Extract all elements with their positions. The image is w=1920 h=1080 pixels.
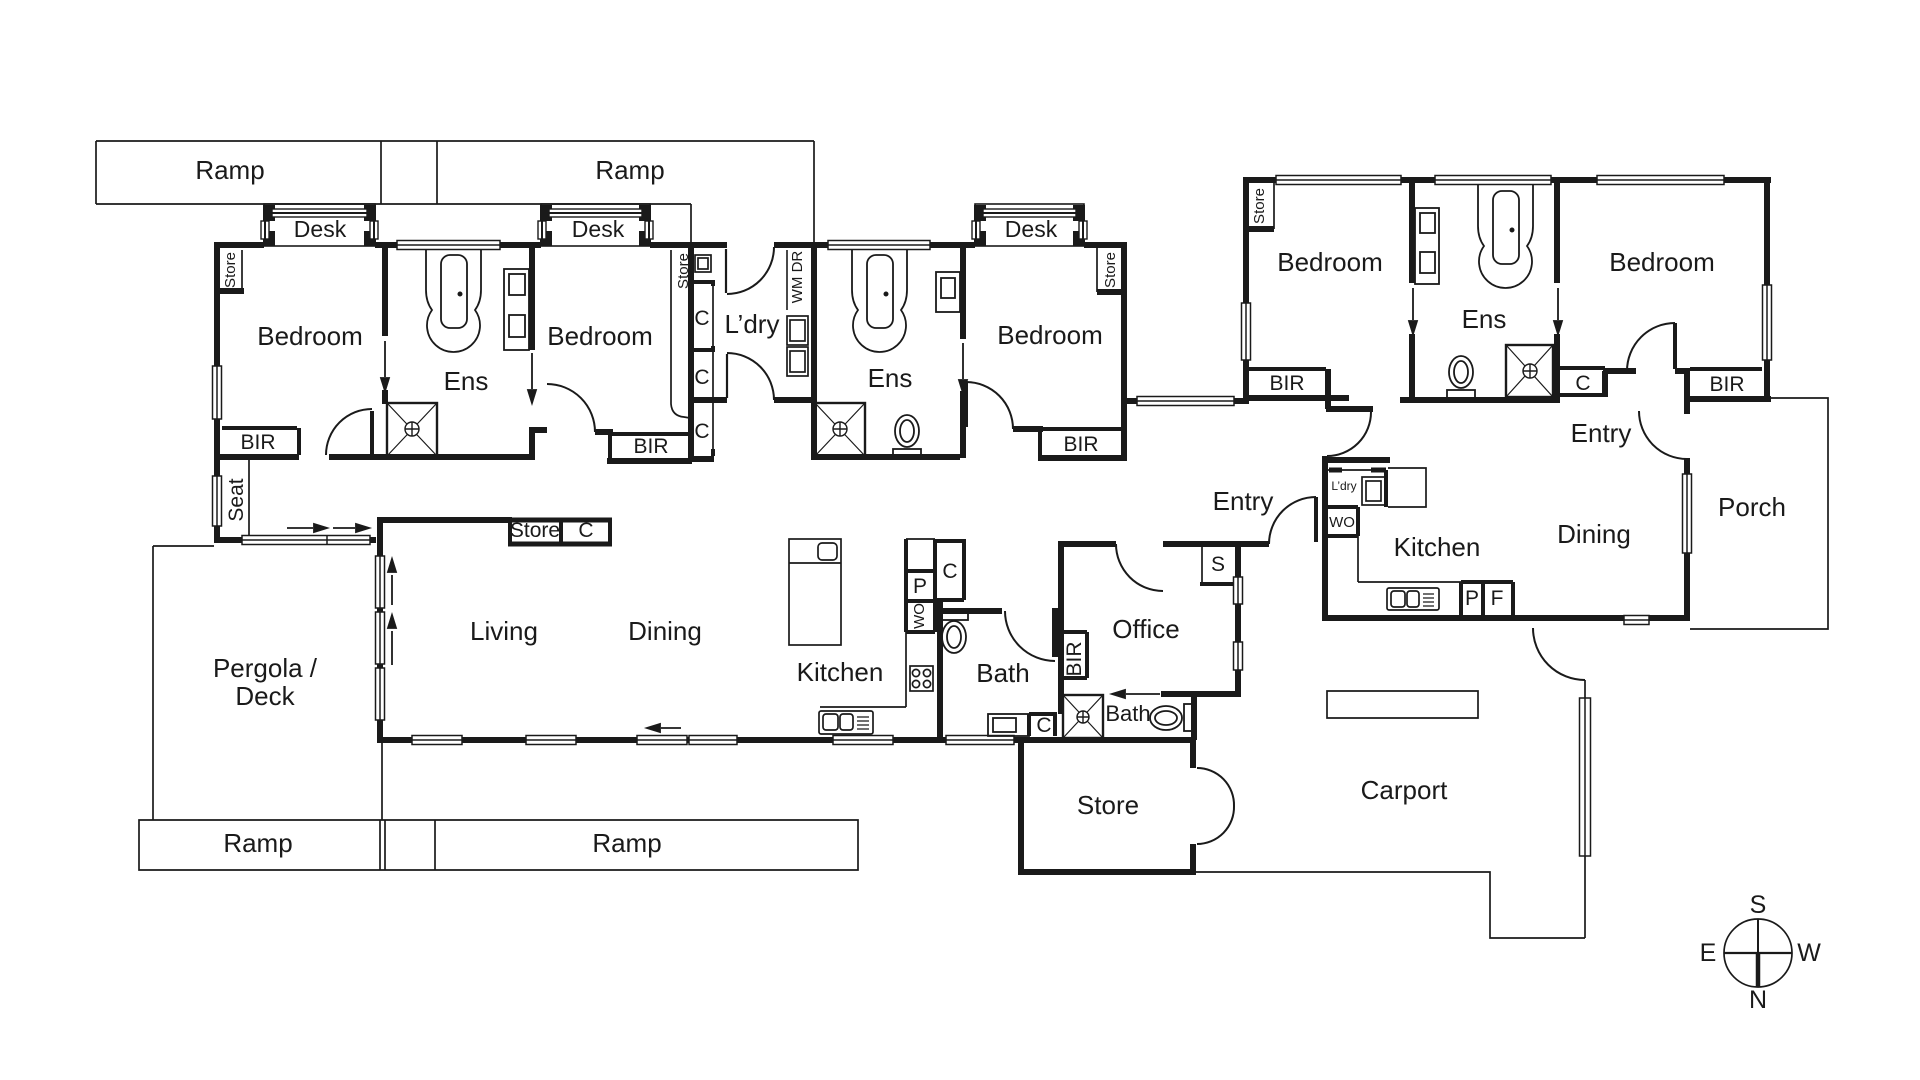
svg-text:Carport: Carport xyxy=(1361,775,1448,805)
svg-text:C: C xyxy=(694,366,709,389)
svg-text:WO: WO xyxy=(911,603,928,629)
svg-text:C: C xyxy=(578,519,593,542)
svg-text:E: E xyxy=(1700,939,1717,967)
svg-text:Kitchen: Kitchen xyxy=(797,657,884,687)
svg-text:S: S xyxy=(1211,553,1225,576)
svg-text:BIR: BIR xyxy=(1269,372,1304,395)
svg-text:Porch: Porch xyxy=(1718,492,1786,522)
svg-text:C: C xyxy=(694,420,709,443)
svg-text:Ens: Ens xyxy=(444,366,489,396)
svg-text:N: N xyxy=(1749,986,1767,1014)
svg-text:Dining: Dining xyxy=(1557,519,1631,549)
svg-text:Bedroom: Bedroom xyxy=(1609,247,1715,277)
svg-text:Pergola /: Pergola / xyxy=(213,653,318,683)
svg-text:Ramp: Ramp xyxy=(223,828,292,858)
svg-text:Kitchen: Kitchen xyxy=(1394,532,1481,562)
svg-text:Store: Store xyxy=(510,519,560,542)
svg-text:Bedroom: Bedroom xyxy=(997,320,1103,350)
svg-text:Dining: Dining xyxy=(628,616,702,646)
svg-text:Living: Living xyxy=(470,616,538,646)
svg-text:L’dry: L’dry xyxy=(1331,479,1356,493)
svg-text:WO: WO xyxy=(1329,514,1355,531)
svg-text:Office: Office xyxy=(1112,614,1179,644)
svg-text:C: C xyxy=(694,307,709,330)
svg-text:L’dry: L’dry xyxy=(725,309,780,339)
svg-text:P: P xyxy=(1465,587,1479,610)
svg-text:Desk: Desk xyxy=(294,216,347,242)
svg-text:Ens: Ens xyxy=(1462,304,1507,334)
svg-text:C: C xyxy=(1036,714,1051,737)
svg-text:Store: Store xyxy=(1251,188,1268,224)
svg-text:Bath: Bath xyxy=(976,658,1030,688)
svg-text:Deck: Deck xyxy=(235,681,295,711)
svg-text:BIR: BIR xyxy=(240,431,275,454)
svg-text:Bedroom: Bedroom xyxy=(547,321,653,351)
svg-text:BIR: BIR xyxy=(1063,433,1098,456)
svg-text:Seat: Seat xyxy=(225,478,248,521)
svg-text:Ramp: Ramp xyxy=(592,828,661,858)
svg-text:Store: Store xyxy=(1102,252,1119,288)
svg-text:Store: Store xyxy=(222,252,239,288)
svg-text:Store: Store xyxy=(675,253,692,289)
svg-text:C: C xyxy=(942,560,957,583)
svg-text:C: C xyxy=(1575,372,1590,395)
svg-text:Entry: Entry xyxy=(1213,486,1274,516)
svg-text:S: S xyxy=(1750,891,1767,919)
svg-text:Ramp: Ramp xyxy=(195,155,264,185)
svg-text:Bedroom: Bedroom xyxy=(1277,247,1383,277)
svg-text:Desk: Desk xyxy=(572,216,625,242)
svg-text:P: P xyxy=(913,575,927,598)
svg-text:BIR: BIR xyxy=(633,435,668,458)
svg-text:BIR: BIR xyxy=(1709,373,1744,396)
svg-text:Bedroom: Bedroom xyxy=(257,321,363,351)
svg-text:Entry: Entry xyxy=(1571,418,1632,448)
svg-text:Bath: Bath xyxy=(1105,701,1150,726)
svg-text:Ens: Ens xyxy=(868,363,913,393)
svg-text:Store: Store xyxy=(1077,790,1139,820)
svg-text:Desk: Desk xyxy=(1005,216,1058,242)
svg-text:BIR: BIR xyxy=(1063,641,1086,676)
svg-text:F: F xyxy=(1491,587,1504,610)
svg-text:Ramp: Ramp xyxy=(595,155,664,185)
svg-text:WM DR: WM DR xyxy=(789,251,806,304)
svg-text:W: W xyxy=(1797,939,1821,967)
